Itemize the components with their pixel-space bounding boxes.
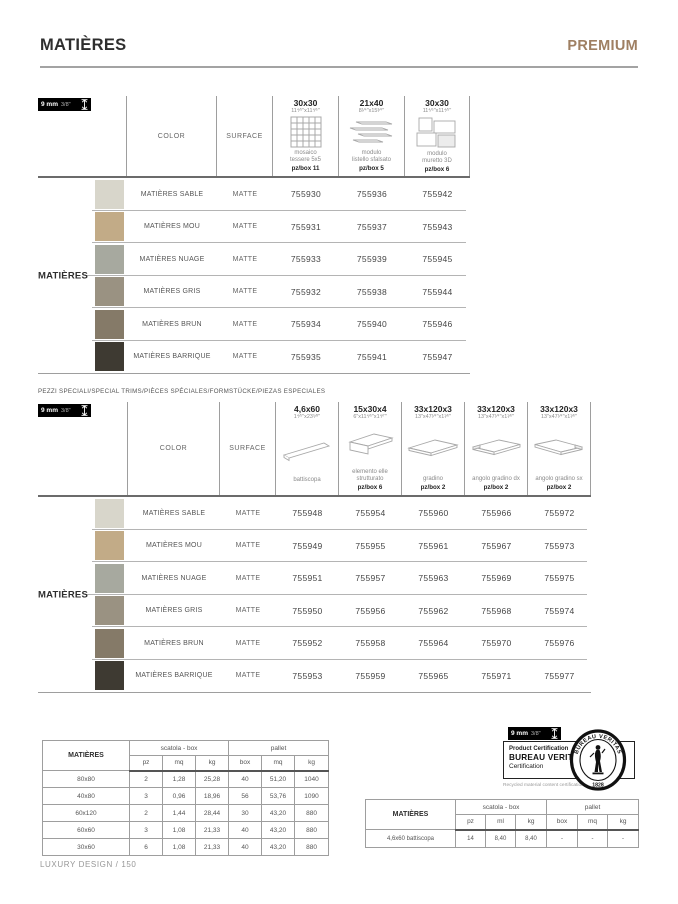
product-code: 755943 <box>405 211 470 244</box>
product-code: 755934 <box>273 308 339 341</box>
product-code: 755966 <box>465 497 528 530</box>
format-label: angolo gradino dx <box>472 476 520 484</box>
bureau-veritas-logo: BUREAU VERITAS 1828 <box>569 729 627 791</box>
surface-value: MATTE <box>217 211 273 244</box>
table-row: MATIÈRES GRIS MATTE 755932 755938 755944 <box>38 276 470 309</box>
value-cell: 30 <box>229 805 262 822</box>
format-pzbox: pz/box 11 <box>292 165 320 173</box>
value-cell: 1040 <box>295 771 329 788</box>
product-code: 755972 <box>528 497 591 530</box>
value-cell: 40 <box>229 771 262 788</box>
thickness-mm: 9 mm <box>511 730 528 737</box>
color-name: MATIÈRES SABLE <box>128 497 220 530</box>
angolo-gradino-dx-icon <box>468 434 524 464</box>
color-swatch <box>95 212 124 241</box>
col-header: kg <box>196 756 229 771</box>
product-code: 755967 <box>465 530 528 563</box>
table-row: MATIÈRES MOU MATTE 755949 755955 755961 … <box>38 530 591 563</box>
product-code: 755959 <box>339 660 402 693</box>
format-pzbox: pz/box 6 <box>425 166 450 174</box>
gradino-icon <box>405 434 461 464</box>
format-pzbox: pz/box 2 <box>547 484 572 492</box>
packing-table-main: MATIÈRES scatola - box pallet pz mq kg b… <box>42 740 329 856</box>
page-footer: LUXURY DESIGN / 150 <box>40 860 136 869</box>
format-column-muretto: 30x30 11⁴⁄⁵"x11⁴⁄⁵" modulo muretto 3D pz… <box>405 96 470 176</box>
value-cell: 880 <box>295 839 329 856</box>
value-cell: 28,44 <box>196 805 229 822</box>
value-cell: 43,20 <box>262 822 295 839</box>
color-swatch <box>95 596 124 625</box>
series-side-label: MATIÈRES <box>38 270 88 281</box>
format-column-angolo-dx: 33x120x3 13"x47¹⁄⁴"x1¹⁄⁶" angolo gradino… <box>465 402 528 495</box>
surface-value: MATTE <box>220 497 276 530</box>
product-code: 755952 <box>276 627 339 660</box>
product-code: 755976 <box>528 627 591 660</box>
format-pzbox: pz/box 5 <box>359 165 384 173</box>
color-swatch <box>95 629 124 658</box>
product-code: 755960 <box>402 497 465 530</box>
color-name: MATIÈRES GRIS <box>128 595 220 628</box>
product-code: 755933 <box>273 243 339 276</box>
col-header: kg <box>608 815 639 830</box>
product-code: 755932 <box>273 276 339 309</box>
surface-value: MATTE <box>220 660 276 693</box>
formats-table-body: MATIÈRES SABLE MATTE 755930 755936 75594… <box>38 178 470 374</box>
size-cell: 80x80 <box>43 771 130 788</box>
table-row: MATIÈRES MOU MATTE 755931 755937 755943 <box>38 211 470 244</box>
product-code: 755975 <box>528 562 591 595</box>
color-swatch <box>95 245 124 274</box>
elemento-elle-icon <box>342 429 398 461</box>
thickness-badge: 9 mm 3/8" <box>508 727 561 740</box>
value-cell: 880 <box>295 805 329 822</box>
color-name: MATIÈRES MOU <box>127 211 217 244</box>
value-cell: 880 <box>295 822 329 839</box>
col-header: box <box>547 815 578 830</box>
value-cell: 1,28 <box>163 771 196 788</box>
value-cell: 56 <box>229 788 262 805</box>
size-cell: 30x60 <box>43 839 130 856</box>
product-code: 755941 <box>339 341 405 374</box>
product-code: 755970 <box>465 627 528 660</box>
surface-value: MATTE <box>220 562 276 595</box>
format-pzbox: pz/box 2 <box>421 484 446 492</box>
format-column-listello: 21x40 8¹⁄⁴"x15³⁄⁴" modulo listello sfals… <box>339 96 405 176</box>
product-code: 755939 <box>339 243 405 276</box>
color-swatch <box>95 277 124 306</box>
page-title: MATIÈRES <box>40 36 126 55</box>
product-code: 755937 <box>339 211 405 244</box>
product-code: 755950 <box>276 595 339 628</box>
table-row: 40x80 3 0,96 18,96 56 53,76 1090 <box>43 788 329 805</box>
value-cell: 6 <box>130 839 163 856</box>
product-code: 755940 <box>339 308 405 341</box>
table-row: 60x60 3 1,08 21,33 40 43,20 880 <box>43 822 329 839</box>
thickness-mm: 9 mm <box>41 101 58 108</box>
formats-table: 9 mm 3/8" COLOR SURFACE 30x30 11⁴⁄⁵"x11⁴… <box>38 96 470 374</box>
value-cell: 8,40 <box>486 830 516 848</box>
format-pzbox: pz/box 2 <box>484 484 509 492</box>
special-trims-section-title: PEZZI SPECIALI/SPECIAL TRIMS/PIÈCES SPÉC… <box>38 388 325 395</box>
product-code: 755938 <box>339 276 405 309</box>
product-code: 755962 <box>402 595 465 628</box>
table-row: MATIÈRES BRUN MATTE 755934 755940 755946 <box>38 308 470 341</box>
format-label: elemento elle strutturato <box>352 469 388 484</box>
product-code: 755935 <box>273 341 339 374</box>
product-code: 755945 <box>405 243 470 276</box>
value-cell: 53,76 <box>262 788 295 805</box>
product-code: 755936 <box>339 178 405 211</box>
size-cell: 40x80 <box>43 788 130 805</box>
product-code: 755944 <box>405 276 470 309</box>
thickness-arrow-icon <box>81 405 88 416</box>
value-cell: 3 <box>130 822 163 839</box>
catalog-page: MATIÈRES PREMIUM 9 mm 3/8" COLOR SURFACE… <box>0 0 678 904</box>
color-swatch <box>95 499 124 528</box>
product-code: 755964 <box>402 627 465 660</box>
col-header: mq <box>262 756 295 771</box>
col-header: mq <box>578 815 608 830</box>
format-column-angolo-sx: 33x120x3 13"x47¹⁄⁴"x1¹⁄⁶" angolo gradino… <box>528 402 591 495</box>
table-row: MATIÈRES GRIS MATTE 755950 755956 755962… <box>38 595 591 628</box>
surface-column-header: SURFACE <box>220 402 276 495</box>
product-code: 755930 <box>273 178 339 211</box>
color-name: MATIÈRES NUAGE <box>128 562 220 595</box>
table-row: 80x80 2 1,28 25,28 40 51,20 1040 <box>43 771 329 788</box>
value-cell: 0,96 <box>163 788 196 805</box>
color-swatch <box>95 342 124 371</box>
packing-series-label: MATIÈRES <box>366 800 456 830</box>
format-pzbox: pz/box 6 <box>358 484 383 492</box>
product-code: 755957 <box>339 562 402 595</box>
size-cell: 60x120 <box>43 805 130 822</box>
table-row: MATIÈRES BARRIQUE MATTE 755953 755959 75… <box>38 660 591 693</box>
collection-badge: PREMIUM <box>567 38 638 54</box>
product-code: 755954 <box>339 497 402 530</box>
value-cell: 43,20 <box>262 839 295 856</box>
packing-table-trims: MATIÈRES scatola - box pallet pz ml kg b… <box>365 799 639 848</box>
table-row: MATIÈRES NUAGE MATTE 755951 755957 75596… <box>38 562 591 595</box>
group-header-pallet: pallet <box>229 741 329 756</box>
product-code: 755955 <box>339 530 402 563</box>
color-swatch <box>95 180 124 209</box>
col-header: box <box>229 756 262 771</box>
color-name: MATIÈRES BARRIQUE <box>128 660 220 693</box>
format-label: angolo gradino sx <box>535 476 582 484</box>
col-header: ml <box>486 815 516 830</box>
value-cell: 1090 <box>295 788 329 805</box>
angolo-gradino-sx-icon <box>531 434 587 464</box>
surface-value: MATTE <box>217 243 273 276</box>
product-code: 755968 <box>465 595 528 628</box>
product-code: 755977 <box>528 660 591 693</box>
header-divider <box>40 66 638 68</box>
group-header-box: scatola - box <box>456 800 547 815</box>
color-swatch <box>95 661 124 690</box>
value-cell: 2 <box>130 805 163 822</box>
formats-table-header: 9 mm 3/8" COLOR SURFACE 30x30 11⁴⁄⁵"x11⁴… <box>38 96 470 178</box>
product-code: 755931 <box>273 211 339 244</box>
color-column-header: COLOR <box>127 96 217 176</box>
table-row: MATIÈRES BRUN MATTE 755952 755958 755964… <box>38 627 591 660</box>
product-code: 755951 <box>276 562 339 595</box>
surface-value: MATTE <box>220 595 276 628</box>
product-code: 755956 <box>339 595 402 628</box>
thickness-inches: 3/8" <box>61 408 81 414</box>
group-header-pallet: pallet <box>547 800 639 815</box>
table-row: 60x120 2 1,44 28,44 30 43,20 880 <box>43 805 329 822</box>
format-label: gradino <box>423 476 443 484</box>
table-row: 30x60 6 1,08 21,33 40 43,20 880 <box>43 839 329 856</box>
special-trims-table-header: 9 mm 3/8" COLOR SURFACE 4,6x60 1⁴⁄⁵"x23⁵… <box>38 402 591 497</box>
color-swatch <box>95 310 124 339</box>
product-code: 755958 <box>339 627 402 660</box>
mosaico-tessere-icon <box>289 115 323 149</box>
color-name: MATIÈRES SABLE <box>127 178 217 211</box>
surface-value: MATTE <box>217 308 273 341</box>
thickness-inches: 3/8" <box>61 102 81 108</box>
table-row: 4,6x60 battiscopa 14 8,40 8,40 - - - <box>366 830 639 848</box>
value-cell: - <box>608 830 639 848</box>
color-name: MATIÈRES GRIS <box>127 276 217 309</box>
product-code: 755969 <box>465 562 528 595</box>
battiscopa-icon <box>279 434 335 464</box>
col-header: kg <box>516 815 547 830</box>
product-code: 755946 <box>405 308 470 341</box>
product-code: 755953 <box>276 660 339 693</box>
product-code: 755961 <box>402 530 465 563</box>
product-code: 755963 <box>402 562 465 595</box>
value-cell: 2 <box>130 771 163 788</box>
thickness-badge: 9 mm 3/8" <box>38 404 91 417</box>
special-trims-table: 9 mm 3/8" COLOR SURFACE 4,6x60 1⁴⁄⁵"x23⁵… <box>38 402 591 693</box>
format-label: battiscopa <box>293 477 320 485</box>
col-header: pz <box>456 815 486 830</box>
format-label: modulo muretto 3D <box>422 151 452 166</box>
size-cell: 4,6x60 battiscopa <box>366 830 456 848</box>
group-header-box: scatola - box <box>130 741 229 756</box>
value-cell: 21,33 <box>196 839 229 856</box>
product-code: 755947 <box>405 341 470 374</box>
size-cell: 60x60 <box>43 822 130 839</box>
value-cell: - <box>547 830 578 848</box>
product-code: 755948 <box>276 497 339 530</box>
value-cell: 40 <box>229 839 262 856</box>
format-label: modulo listello sfalsato <box>352 150 391 165</box>
table-row: MATIÈRES NUAGE MATTE 755933 755939 75594… <box>38 243 470 276</box>
value-cell: 40 <box>229 822 262 839</box>
value-cell: 1,08 <box>163 822 196 839</box>
surface-value: MATTE <box>220 530 276 563</box>
product-code: 755965 <box>402 660 465 693</box>
value-cell: - <box>578 830 608 848</box>
surface-value: MATTE <box>220 627 276 660</box>
color-name: MATIÈRES MOU <box>128 530 220 563</box>
thickness-inches: 3/8" <box>531 731 551 737</box>
value-cell: 1,44 <box>163 805 196 822</box>
table-row: MATIÈRES SABLE MATTE 755948 755954 75596… <box>38 497 591 530</box>
color-name: MATIÈRES BARRIQUE <box>127 341 217 374</box>
color-name: MATIÈRES BRUN <box>128 627 220 660</box>
thickness-mm: 9 mm <box>41 407 58 414</box>
format-label: mosaico tessere 5x5 <box>290 150 321 165</box>
product-code: 755949 <box>276 530 339 563</box>
surface-value: MATTE <box>217 341 273 374</box>
surface-value: MATTE <box>217 178 273 211</box>
bureau-veritas-year: 1828 <box>592 783 604 789</box>
thickness-arrow-icon <box>81 99 88 110</box>
product-code: 755973 <box>528 530 591 563</box>
col-header: kg <box>295 756 329 771</box>
format-column-battiscopa: 4,6x60 1⁴⁄⁵"x23⁵⁄⁸" battiscopa <box>276 402 339 495</box>
color-name: MATIÈRES BRUN <box>127 308 217 341</box>
col-header: pz <box>130 756 163 771</box>
surface-column-header: SURFACE <box>217 96 273 176</box>
value-cell: 3 <box>130 788 163 805</box>
format-column-gradino: 33x120x3 13"x47¹⁄⁴"x1¹⁄⁶" gradino pz/box… <box>402 402 465 495</box>
special-trims-table-body: MATIÈRES SABLE MATTE 755948 755954 75596… <box>38 497 591 693</box>
value-cell: 14 <box>456 830 486 848</box>
product-code: 755974 <box>528 595 591 628</box>
thickness-badge: 9 mm 3/8" <box>38 98 91 111</box>
color-column-header: COLOR <box>128 402 220 495</box>
color-swatch <box>95 531 124 560</box>
format-column-mosaico: 30x30 11⁴⁄⁵"x11⁴⁄⁵" mosaico tessere 5x5 … <box>273 96 339 176</box>
color-swatch <box>95 564 124 593</box>
value-cell: 25,28 <box>196 771 229 788</box>
col-header: mq <box>163 756 196 771</box>
thickness-arrow-icon <box>551 728 558 739</box>
color-name: MATIÈRES NUAGE <box>127 243 217 276</box>
packing-series-label: MATIÈRES <box>43 741 130 771</box>
value-cell: 1,08 <box>163 839 196 856</box>
value-cell: 51,20 <box>262 771 295 788</box>
table-row: MATIÈRES SABLE MATTE 755930 755936 75594… <box>38 178 470 211</box>
series-side-label: MATIÈRES <box>38 589 88 600</box>
product-code: 755942 <box>405 178 470 211</box>
value-cell: 8,40 <box>516 830 547 848</box>
muretto-3d-icon <box>415 115 459 151</box>
table-row: MATIÈRES BARRIQUE MATTE 755935 755941 75… <box>38 341 470 374</box>
surface-value: MATTE <box>217 276 273 309</box>
value-cell: 43,20 <box>262 805 295 822</box>
format-column-elemento-elle: 15x30x4 6"x11⁴⁄⁵"x1⁴⁄⁷" elemento elle st… <box>339 402 402 495</box>
listello-sfalsato-icon <box>344 115 400 149</box>
value-cell: 21,33 <box>196 822 229 839</box>
value-cell: 18,96 <box>196 788 229 805</box>
product-code: 755971 <box>465 660 528 693</box>
